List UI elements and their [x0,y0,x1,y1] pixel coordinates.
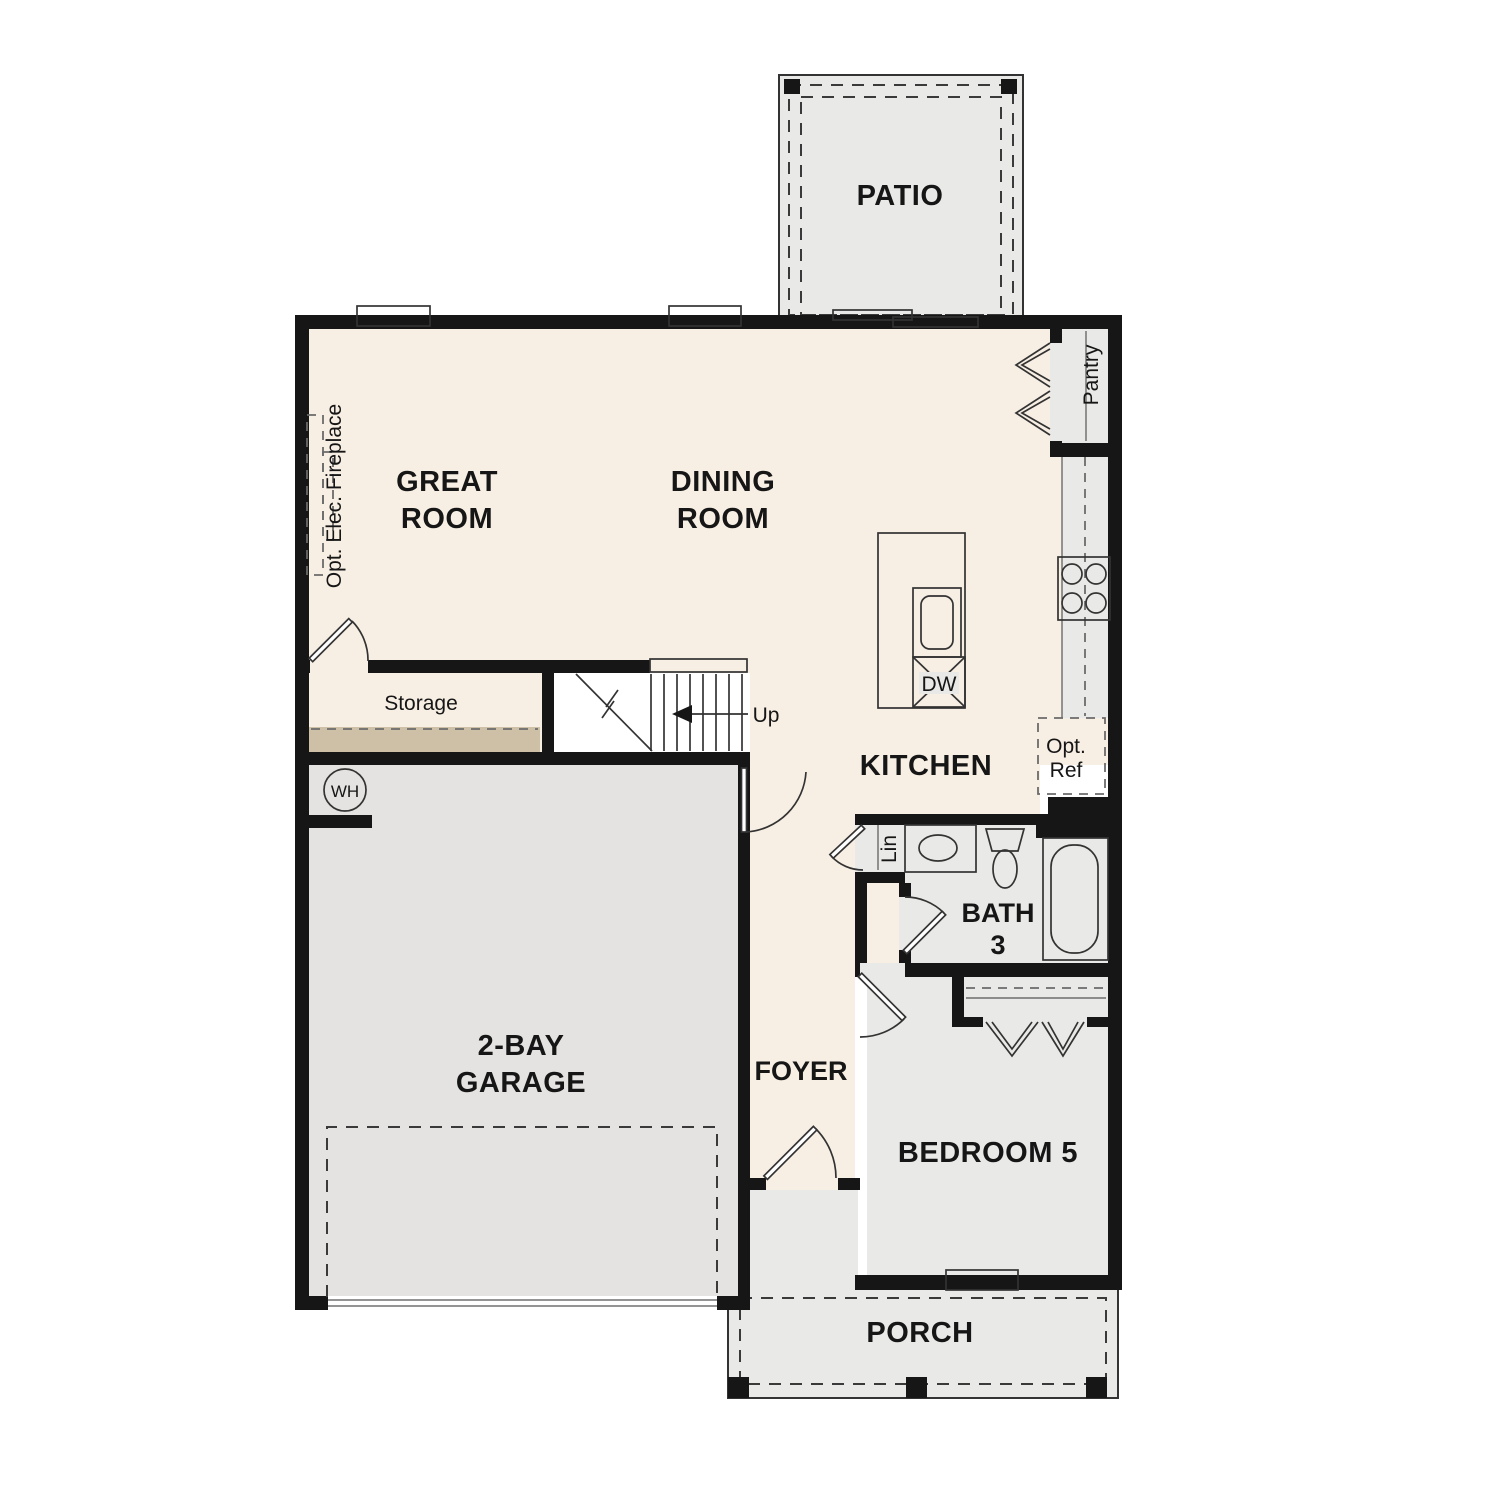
optional-fireplace-label: Opt. Elec. Fireplace [323,404,346,588]
wall-garage-right-lower [738,1190,750,1300]
storage-label: Storage [384,692,458,715]
linen-label: Lin [878,835,901,863]
bedroom5-floor [867,977,1108,1275]
patio-post-left [784,79,800,94]
porch-post-left [728,1377,749,1398]
wall-exterior-right-lower [1108,838,1122,1290]
bedroom5-label: BEDROOM 5 [898,1137,1078,1169]
pantry-label: Pantry [1080,344,1103,405]
bath3-door-opening [899,897,911,950]
floor-plan-canvas: PATIO GREAT ROOM DINING ROOM KITCHEN Sto… [0,0,1500,1500]
foyer-label: FOYER [754,1056,847,1086]
wall-closet-left [952,977,964,1017]
opt-ref-label-line1: Opt. [1046,735,1086,758]
pantry-door-opening [1050,343,1062,441]
wall-kitchen-bath-corner [1048,797,1122,838]
wall-front-left [738,1178,766,1190]
bath3-label-line1: BATH [962,898,1035,928]
wall-exterior-top [295,315,1122,329]
foyer-door-leaf [742,768,747,832]
porch-post-right [1086,1377,1107,1398]
wall-bedroom-bottom [855,1275,1122,1290]
foyer-floor [750,765,855,1190]
wall-closet-bottom-left [952,1017,983,1027]
dining-room-label-line2: ROOM [677,503,769,535]
dining-room-label-line1: DINING [671,466,776,498]
kitchen-label: KITCHEN [860,750,992,782]
garage-label-line1: 2-BAY [478,1030,565,1062]
opt-ref-label-line2: Ref [1050,759,1083,782]
wall-garage-top [303,752,750,765]
wall-bedroom-top [905,963,1122,977]
wall-storage-top-stub [303,660,310,673]
bath-entry-alcove-floor [867,883,899,963]
stair-floor [554,673,750,752]
front-door-opening [766,1178,838,1190]
garage-door-opening [328,1296,717,1310]
wall-pantry-bottom [1050,443,1122,457]
wall-storage-top [368,660,650,673]
wall-exterior-left [295,315,309,1310]
storage-door-opening [310,660,368,673]
storage-tan-strip [309,727,540,752]
entry-alcove-floor [746,1190,858,1290]
wall-closet-bottom-right [1087,1017,1108,1027]
garage-label-line2: GARAGE [456,1067,586,1099]
wall-foyer-bath [855,872,867,963]
patio-post-right [1001,79,1017,94]
porch-post-center [906,1377,927,1398]
great-room-label-line1: GREAT [396,466,498,498]
wall-linen-bottom [855,872,905,883]
floor-plan: PATIO GREAT ROOM DINING ROOM KITCHEN Sto… [0,0,1500,1500]
bath3-label-line2: 3 [990,930,1005,960]
porch-label: PORCH [866,1317,973,1349]
wall-bath-top [855,814,1048,825]
wall-bath-door-stub-top [899,883,911,897]
water-heater-label: WH [331,782,359,801]
patio-label: PATIO [857,180,944,212]
dishwasher-label: DW [922,673,957,696]
wall-storage-stair-divider [542,660,554,753]
wall-front-right [838,1178,860,1190]
bedroom5-door-opening [860,963,905,977]
stairs-up-label: Up [753,704,780,727]
wall-pantry-left-stub-top [1050,329,1062,343]
wall-water-heater-nook [295,815,372,828]
great-room-label-line2: ROOM [401,503,493,535]
